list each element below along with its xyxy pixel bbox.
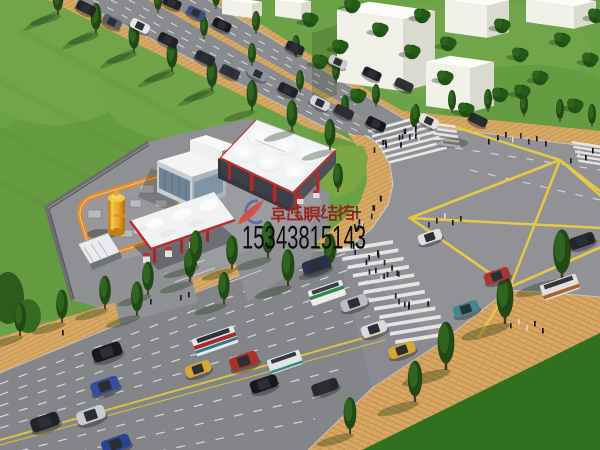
svg-text:15343815143: 15343815143 — [242, 220, 366, 256]
